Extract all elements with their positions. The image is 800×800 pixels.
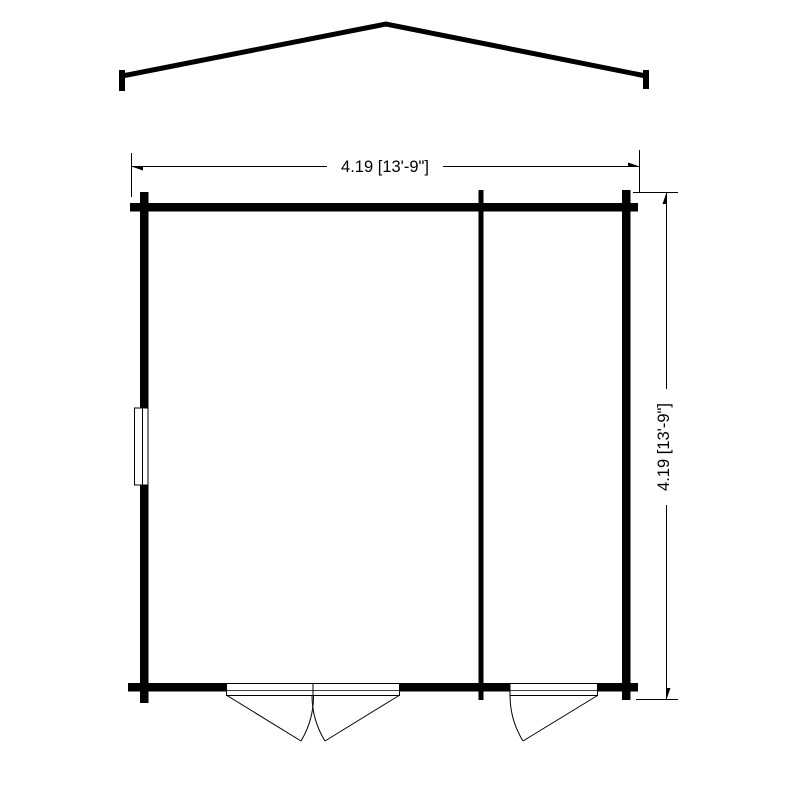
plan-svg: 4.19 [13'-9"] 4.19 [13'-9"] <box>0 0 800 800</box>
double-door <box>227 684 400 742</box>
double-door-leaf-right-panel <box>313 684 400 696</box>
width-tick-left <box>132 167 144 171</box>
left-wall-lower-segment <box>140 485 149 703</box>
depth-tick-bottom <box>667 688 671 700</box>
top-wall <box>130 203 638 212</box>
roof-slopes <box>122 24 646 76</box>
window <box>135 408 149 485</box>
left-wall-upper-segment <box>140 192 149 408</box>
bottom-wall-middle-segment <box>400 683 511 692</box>
floor-plan-drawing: 4.19 [13'-9"] 4.19 [13'-9"] <box>0 0 800 800</box>
depth-dimension: 4.19 [13'-9"] <box>633 193 678 700</box>
double-door-right-swing-arc <box>312 696 325 742</box>
right-wall <box>622 190 631 700</box>
width-tick-right <box>628 163 640 167</box>
single-door <box>510 684 598 742</box>
window-frame <box>135 408 149 485</box>
partition-wall <box>479 190 484 700</box>
double-door-leaf-left-panel <box>227 684 314 696</box>
double-door-right-swing-leaf <box>325 696 399 742</box>
width-dimension-label: 4.19 [13'-9"] <box>341 158 429 176</box>
width-dimension: 4.19 [13'-9"] <box>132 150 640 197</box>
depth-tick-top <box>663 193 667 205</box>
walls <box>128 190 638 703</box>
double-door-left-swing-arc <box>301 696 314 742</box>
bottom-wall-right-segment <box>598 683 639 692</box>
single-door-swing-leaf <box>523 696 598 742</box>
single-door-swing-arc <box>510 696 523 742</box>
double-door-left-swing-leaf <box>227 696 301 742</box>
depth-dimension-label: 4.19 [13'-9"] <box>655 403 673 491</box>
roof-profile <box>122 24 646 91</box>
single-door-panel <box>510 684 598 696</box>
